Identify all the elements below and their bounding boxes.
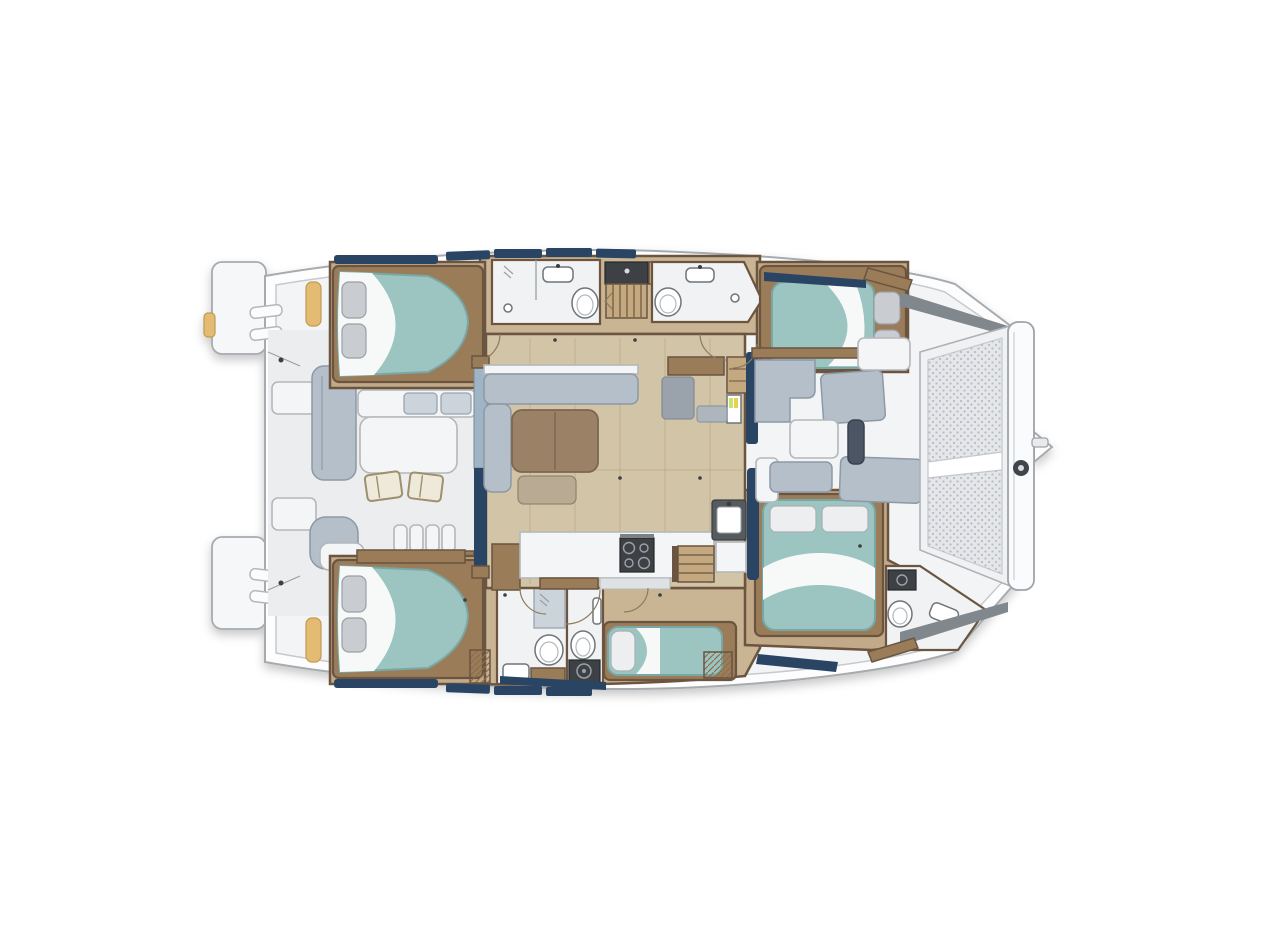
stbd-fwd-bed bbox=[755, 494, 883, 636]
port-fwd-head bbox=[652, 262, 762, 322]
galley-cabinet-low bbox=[716, 542, 746, 572]
toilet bbox=[571, 631, 595, 659]
hull-window-strip bbox=[334, 255, 438, 264]
cockpit-chair bbox=[408, 472, 444, 502]
deck-hatch bbox=[272, 382, 316, 414]
shower-drain bbox=[504, 304, 512, 312]
davit-fitting bbox=[279, 581, 284, 586]
cockpit-step bbox=[442, 525, 455, 552]
galley-shelf bbox=[540, 578, 598, 589]
cockpit-step bbox=[394, 525, 407, 552]
hull-window-strip bbox=[334, 679, 438, 688]
lounge-table bbox=[790, 420, 838, 458]
cabinet-low bbox=[697, 406, 727, 422]
nav-desk bbox=[668, 357, 724, 375]
cabin-bulkhead bbox=[357, 550, 465, 563]
dinette-settee-back bbox=[484, 374, 638, 404]
toilet bbox=[655, 288, 681, 316]
dinette-settee-arm bbox=[484, 404, 511, 492]
fwd-trim bbox=[752, 348, 864, 358]
ottoman bbox=[518, 476, 576, 504]
cockpit-step bbox=[410, 525, 423, 552]
stbd-companionway-stairs bbox=[672, 546, 714, 582]
divider-post bbox=[848, 420, 864, 464]
sink bbox=[686, 268, 714, 282]
tv-cabinet bbox=[888, 570, 916, 590]
toilet bbox=[535, 635, 563, 665]
cockpit-step bbox=[426, 525, 439, 552]
cockpit-table bbox=[360, 417, 457, 473]
bench-cushion bbox=[441, 393, 471, 414]
shower-drain bbox=[731, 294, 739, 302]
lounge-cushion bbox=[820, 370, 885, 424]
port-aft-bed bbox=[333, 266, 483, 382]
galley-sink bbox=[712, 500, 746, 540]
lounge-cushion bbox=[770, 462, 832, 492]
cockpit-chair bbox=[364, 471, 402, 502]
swim-platform-starboard bbox=[212, 537, 266, 629]
nav-seat bbox=[662, 377, 694, 419]
bench-cushion bbox=[404, 393, 437, 414]
deck-hatch bbox=[272, 498, 316, 530]
fwd-seat bbox=[858, 338, 910, 370]
stbd-aft-bed bbox=[333, 560, 483, 678]
cabinet-doors bbox=[600, 578, 670, 589]
single-berth bbox=[604, 622, 736, 680]
stove bbox=[620, 534, 654, 572]
deck-cushion bbox=[306, 282, 321, 326]
catamaran-floor-plan bbox=[0, 0, 1261, 945]
anchor-roller bbox=[1032, 438, 1048, 447]
port-aft-head bbox=[492, 260, 600, 324]
sink bbox=[543, 267, 573, 282]
trampoline bbox=[920, 326, 1010, 586]
toilet bbox=[572, 288, 598, 318]
sink bbox=[593, 598, 601, 624]
deck-cushion bbox=[306, 618, 321, 662]
boarding-handle bbox=[204, 313, 215, 337]
shower bbox=[534, 588, 565, 628]
floor-plan-stage bbox=[0, 0, 1261, 945]
galley-cabinet bbox=[492, 544, 520, 590]
berth-hatch bbox=[704, 652, 732, 678]
davit-fitting bbox=[279, 358, 284, 363]
stbd-aft-head bbox=[497, 584, 567, 684]
toilet bbox=[888, 601, 912, 627]
cabin-steps bbox=[470, 650, 490, 683]
